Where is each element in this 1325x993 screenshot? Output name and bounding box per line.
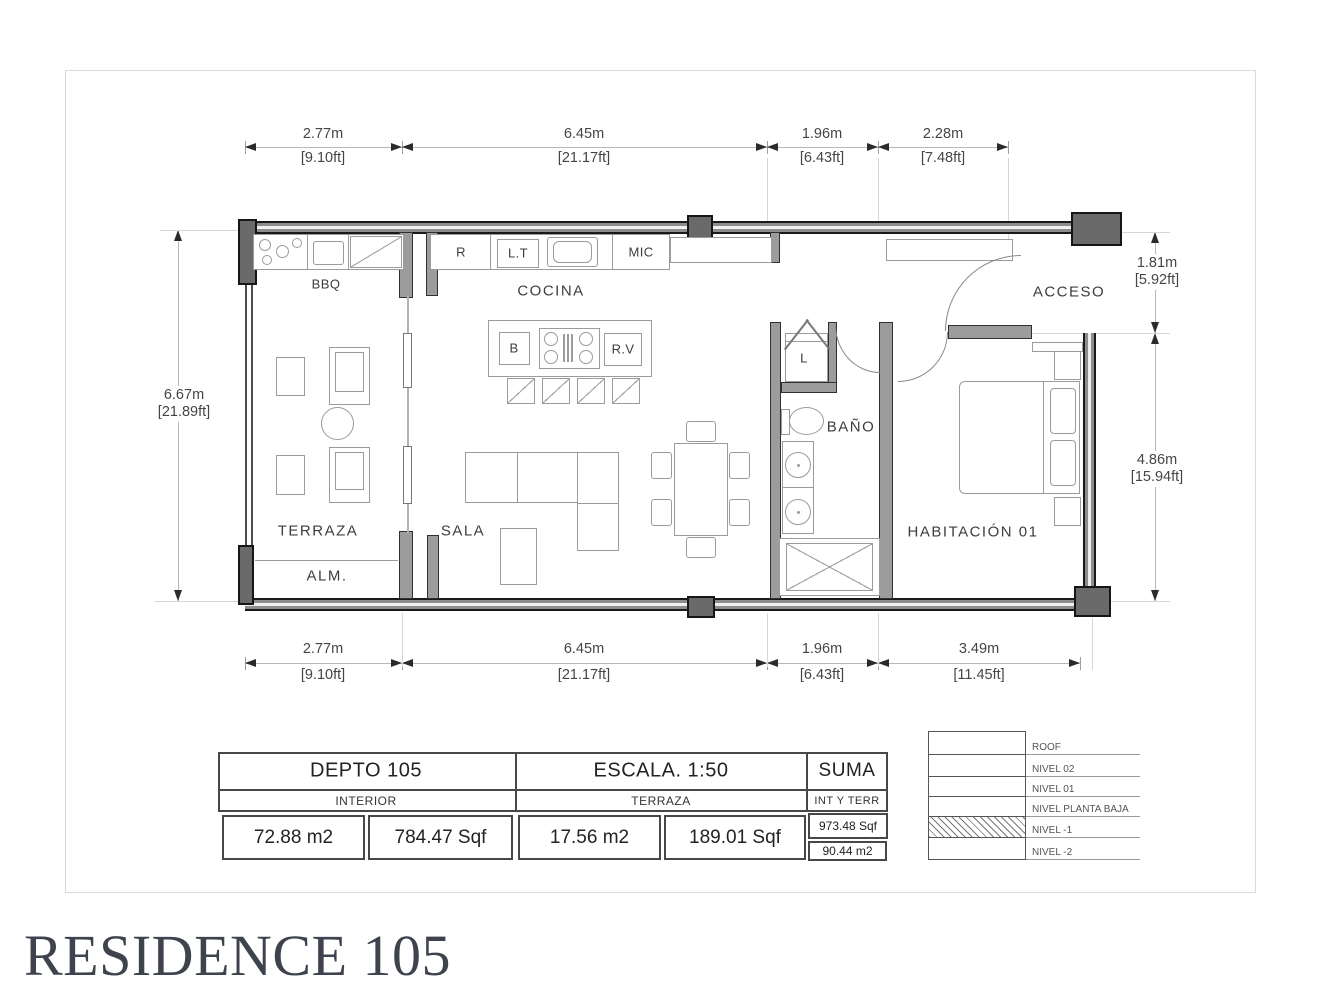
kitchen-counter-divider [612,234,613,270]
entry-closet [886,239,1013,261]
level-callout-line [1026,859,1140,860]
column-bottom-mid [687,596,715,618]
dim-top-1-ft: [9.10ft] [301,150,345,167]
bath-sink-drain [797,511,800,514]
bbq-burner-icon [259,239,271,251]
dim-top-2-ft: [21.17ft] [558,150,610,167]
bar-stool [577,378,605,404]
dim-arrow [245,143,256,151]
coffee-table [500,528,537,585]
dim-bottom-2-m: 6.45m [564,641,604,658]
bed-blanket-line [1043,381,1044,494]
dim-arrow [1151,590,1159,601]
dim-arrow [402,659,413,667]
table-title-depto: DEPTO 105 [310,760,422,783]
levels-row-line [928,776,1026,777]
table-value-suma-sqf: 973.48 Sqf [808,813,888,839]
dim-left: 6.67m [21.89ft] [154,386,214,422]
cooktop-burner-icon [579,350,593,364]
level-label-nivel-minus1: NIVEL -1 [1032,825,1072,836]
table-value-interior-sqf: 784.47 Sqf [368,815,513,860]
bar-stool [507,378,535,404]
dim-arrow [767,659,778,667]
label-laundry: L [800,351,808,366]
wall-divider-bottom-b [427,535,439,599]
table-value-suma-m2: 90.44 m2 [808,841,887,861]
dim-top-2-m: 6.45m [564,126,604,143]
terrace-chair-cushion [335,352,364,392]
dim-arrow [867,143,878,151]
level-callout-line [1026,837,1140,838]
dim-arrow [878,143,889,151]
label-sala: SALA [441,523,485,540]
dim-arrow [391,659,402,667]
extension-line [1111,601,1170,602]
dining-chair [686,421,716,442]
cooktop-burner-icon [544,332,558,346]
dim-right-1-ft: [5.92ft] [1135,272,1179,289]
bar-stool [542,378,570,404]
extension-line [767,158,768,222]
column-bottom-left [238,545,254,605]
level-label-planta-baja: NIVEL PLANTA BAJA [1032,804,1129,815]
bbq-sink-icon [313,241,344,265]
level-label-roof: ROOF [1032,742,1061,753]
dim-arrow [174,230,182,241]
bed-pillow [1050,388,1076,434]
levels-row-line [928,796,1026,797]
bbq-burner-icon [262,255,272,265]
table-sub-terraza: TERRAZA [631,794,691,808]
terrace-railing [245,267,253,545]
dim-arrow [391,143,402,151]
extension-line [878,158,879,222]
drawing-sheet: 2.77m [9.10ft] 6.45m [21.17ft] 1.96m [6.… [0,0,1325,993]
terrace-side-table [276,357,305,396]
dining-chair [651,499,672,526]
dim-bottom-4-m: 3.49m [959,641,999,658]
dim-line-bottom [245,663,1080,664]
extension-line [160,230,240,231]
dim-arrow [1151,322,1159,333]
level-callout-line [1026,796,1140,797]
sliding-door-panel [403,333,412,388]
cooktop-burner-icon [579,332,593,346]
dim-top-4-ft: [7.48ft] [921,150,965,167]
column-top-right [1071,212,1122,246]
terrace-round-table [321,407,354,440]
extension-line [1122,232,1170,233]
cooktop-burner-icon [544,350,558,364]
bbq-cabinet [350,236,402,268]
dim-left-ft: [21.89ft] [158,404,210,421]
table-value-interior-m2: 72.88 m2 [222,815,365,860]
wall-bottom [245,598,1111,611]
dim-arrow [245,659,256,667]
kitchen-counter-divider [490,234,491,270]
levels-row-line [928,837,1026,838]
dim-right-1-m: 1.81m [1135,255,1179,272]
extension-line [402,613,403,667]
dim-tick [1080,657,1081,670]
dim-line-top [245,147,1008,148]
dim-arrow [756,143,767,151]
table-value-terraza-sqf: 189.01 Sqf [664,815,806,860]
cooktop-grill-icon [567,334,569,362]
bed-pillow [1050,440,1076,486]
dim-arrow [174,590,182,601]
label-mic: MIC [628,245,653,260]
label-bbq: BBQ [312,277,341,292]
wall-top [245,221,1122,234]
label-bano: BAÑO [827,419,876,436]
label-terraza: TERRAZA [278,523,359,540]
label-lt: L.T [508,246,528,261]
alm-divider-line [255,560,398,561]
dim-top-1-m: 2.77m [303,126,343,143]
label-rv: R.V [612,342,635,357]
info-table-hline [218,789,888,791]
sofa-cushion-line [517,452,518,503]
extension-line [878,613,879,667]
dim-arrow [1069,659,1080,667]
wall-bath-bedroom [879,322,893,599]
info-table-vline [806,752,808,812]
label-alm: ALM. [306,568,347,585]
levels-row-line [928,754,1026,755]
dim-tick [1008,141,1009,154]
dim-bottom-1-ft: [9.10ft] [301,667,345,684]
dim-top-3-m: 1.96m [802,126,842,143]
shower-tray [786,543,873,591]
nightstand [1054,497,1081,526]
terrace-side-table [276,455,305,495]
extension-line [767,613,768,667]
label-cocina: COCINA [517,283,584,300]
level-label-nivel-02: NIVEL 02 [1032,764,1074,775]
info-table-vline [515,752,517,812]
wall-right [1083,333,1096,598]
bbq-burner-icon [276,245,289,258]
dim-bottom-3-ft: [6.43ft] [800,667,844,684]
dim-bottom-1-m: 2.77m [303,641,343,658]
label-acceso: ACCESO [1033,284,1105,301]
dim-arrow [756,659,767,667]
cooktop-grill-icon [571,334,573,362]
table-title-escala: ESCALA. 1:50 [594,760,729,783]
dim-right-2-ft: [15.94ft] [1131,469,1183,486]
level-label-nivel-minus2: NIVEL -2 [1032,847,1072,858]
extension-line [1092,618,1093,670]
dim-top-3-ft: [6.43ft] [800,150,844,167]
sliding-door-panel [403,446,412,504]
toilet-bowl [789,407,824,435]
label-b: B [509,341,518,356]
bbq-burner-icon [292,238,302,248]
dim-bottom-3-m: 1.96m [802,641,842,658]
dim-arrow [867,659,878,667]
counter-shelf [670,237,772,263]
bath-sink-drain [797,464,800,467]
sofa-chaise [577,452,619,551]
dim-right-2-m: 4.86m [1131,452,1183,469]
level-callout-line [1026,776,1140,777]
levels-current-level-hatch [929,817,1025,837]
table-sub-suma: INT Y TERR [814,795,879,807]
dim-bottom-2-ft: [21.17ft] [558,667,610,684]
table-title-suma: SUMA [819,760,876,782]
level-callout-line [1026,816,1140,817]
kitchen-sink-basin [553,241,592,263]
dining-chair [651,452,672,479]
cooktop-grill-icon [563,334,565,362]
dim-arrow [997,143,1008,151]
level-callout-line [1026,754,1140,755]
dim-bottom-4-ft: [11.45ft] [953,667,1004,684]
dining-chair [686,537,716,558]
column-bottom-right [1074,586,1111,617]
bath-vanity-divider [782,487,814,488]
wall-divider-bottom-a [399,531,413,599]
wall-laundry-bottom [781,382,837,393]
dining-chair [729,452,750,479]
sofa-cushion-line [577,503,619,504]
dim-arrow [1151,232,1159,243]
page-title: RESIDENCE 105 [24,922,451,989]
bbq-counter-divider [348,234,349,270]
extension-line [1032,333,1170,334]
table-sub-interior: INTERIOR [335,794,396,808]
bar-stool [612,378,640,404]
nightstand [1054,351,1081,380]
dim-top-4-m: 2.28m [923,126,963,143]
dining-chair [729,499,750,526]
terrace-chair-cushion [335,452,364,490]
dim-right-2: 4.86m [15.94ft] [1127,451,1187,487]
dining-table [674,443,728,536]
dim-left-m: 6.67m [158,387,210,404]
table-value-terraza-m2: 17.56 m2 [518,815,661,860]
bbq-counter-divider [307,234,308,270]
level-label-nivel-01: NIVEL 01 [1032,784,1074,795]
dim-arrow [767,143,778,151]
dim-arrow [878,659,889,667]
label-refrigerator: R [456,245,466,260]
label-habitacion: HABITACIÓN 01 [908,524,1039,541]
dim-arrow [402,143,413,151]
dim-arrow [1151,333,1159,344]
dim-right-1: 1.81m [5.92ft] [1131,254,1183,290]
